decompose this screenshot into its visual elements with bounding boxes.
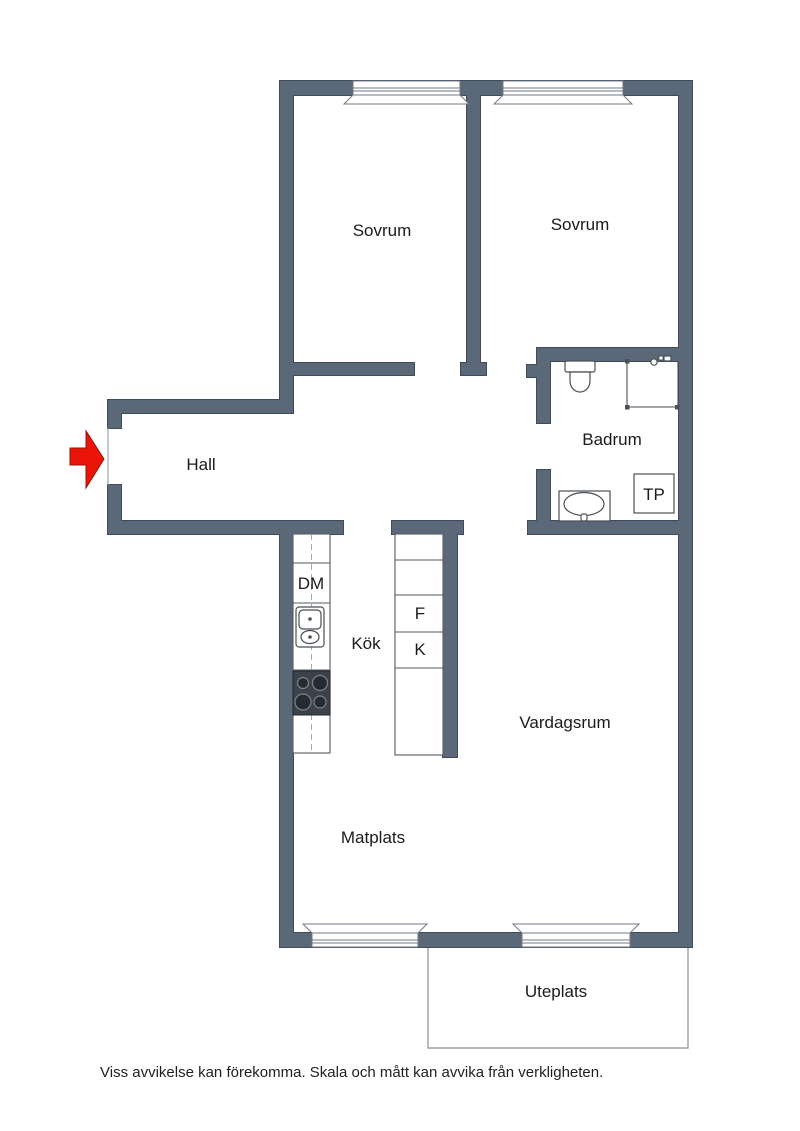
fridge-label: F	[415, 604, 425, 623]
room-label-kok: Kök	[351, 634, 381, 653]
kitchen-sink-icon	[296, 607, 324, 647]
room-label-sovrum-1: Sovrum	[353, 221, 412, 240]
toilet-icon	[565, 361, 595, 392]
bathroom-sink-icon	[559, 491, 610, 521]
freezer-label: K	[414, 640, 426, 659]
window-icon	[513, 924, 639, 947]
room-label-vardagsrum: Vardagsrum	[519, 713, 610, 732]
entrance-arrow-icon	[70, 431, 104, 488]
room-label-matplats: Matplats	[341, 828, 405, 847]
floorplan-page: TP DM F K Sovr	[0, 0, 800, 1131]
tp-label: TP	[643, 485, 665, 504]
room-label-uteplats: Uteplats	[525, 982, 587, 1001]
stove-icon	[293, 671, 330, 715]
shower-icon	[625, 356, 680, 410]
window-icon	[303, 924, 427, 947]
fridge-freezer-unit: F K	[395, 534, 443, 755]
laundry-tower-unit: TP	[634, 474, 674, 513]
disclaimer-text: Viss avvikelse kan förekomma. Skala och …	[100, 1064, 603, 1081]
floorplan-drawing: TP DM F K Sovr	[0, 0, 800, 1131]
kitchen-counter: DM	[293, 534, 330, 753]
room-label-sovrum-2: Sovrum	[551, 215, 610, 234]
window-icon	[344, 81, 469, 104]
window-icon	[494, 81, 632, 104]
dishwasher-label: DM	[298, 574, 324, 593]
room-label-badrum: Badrum	[582, 430, 642, 449]
room-label-hall: Hall	[186, 455, 215, 474]
